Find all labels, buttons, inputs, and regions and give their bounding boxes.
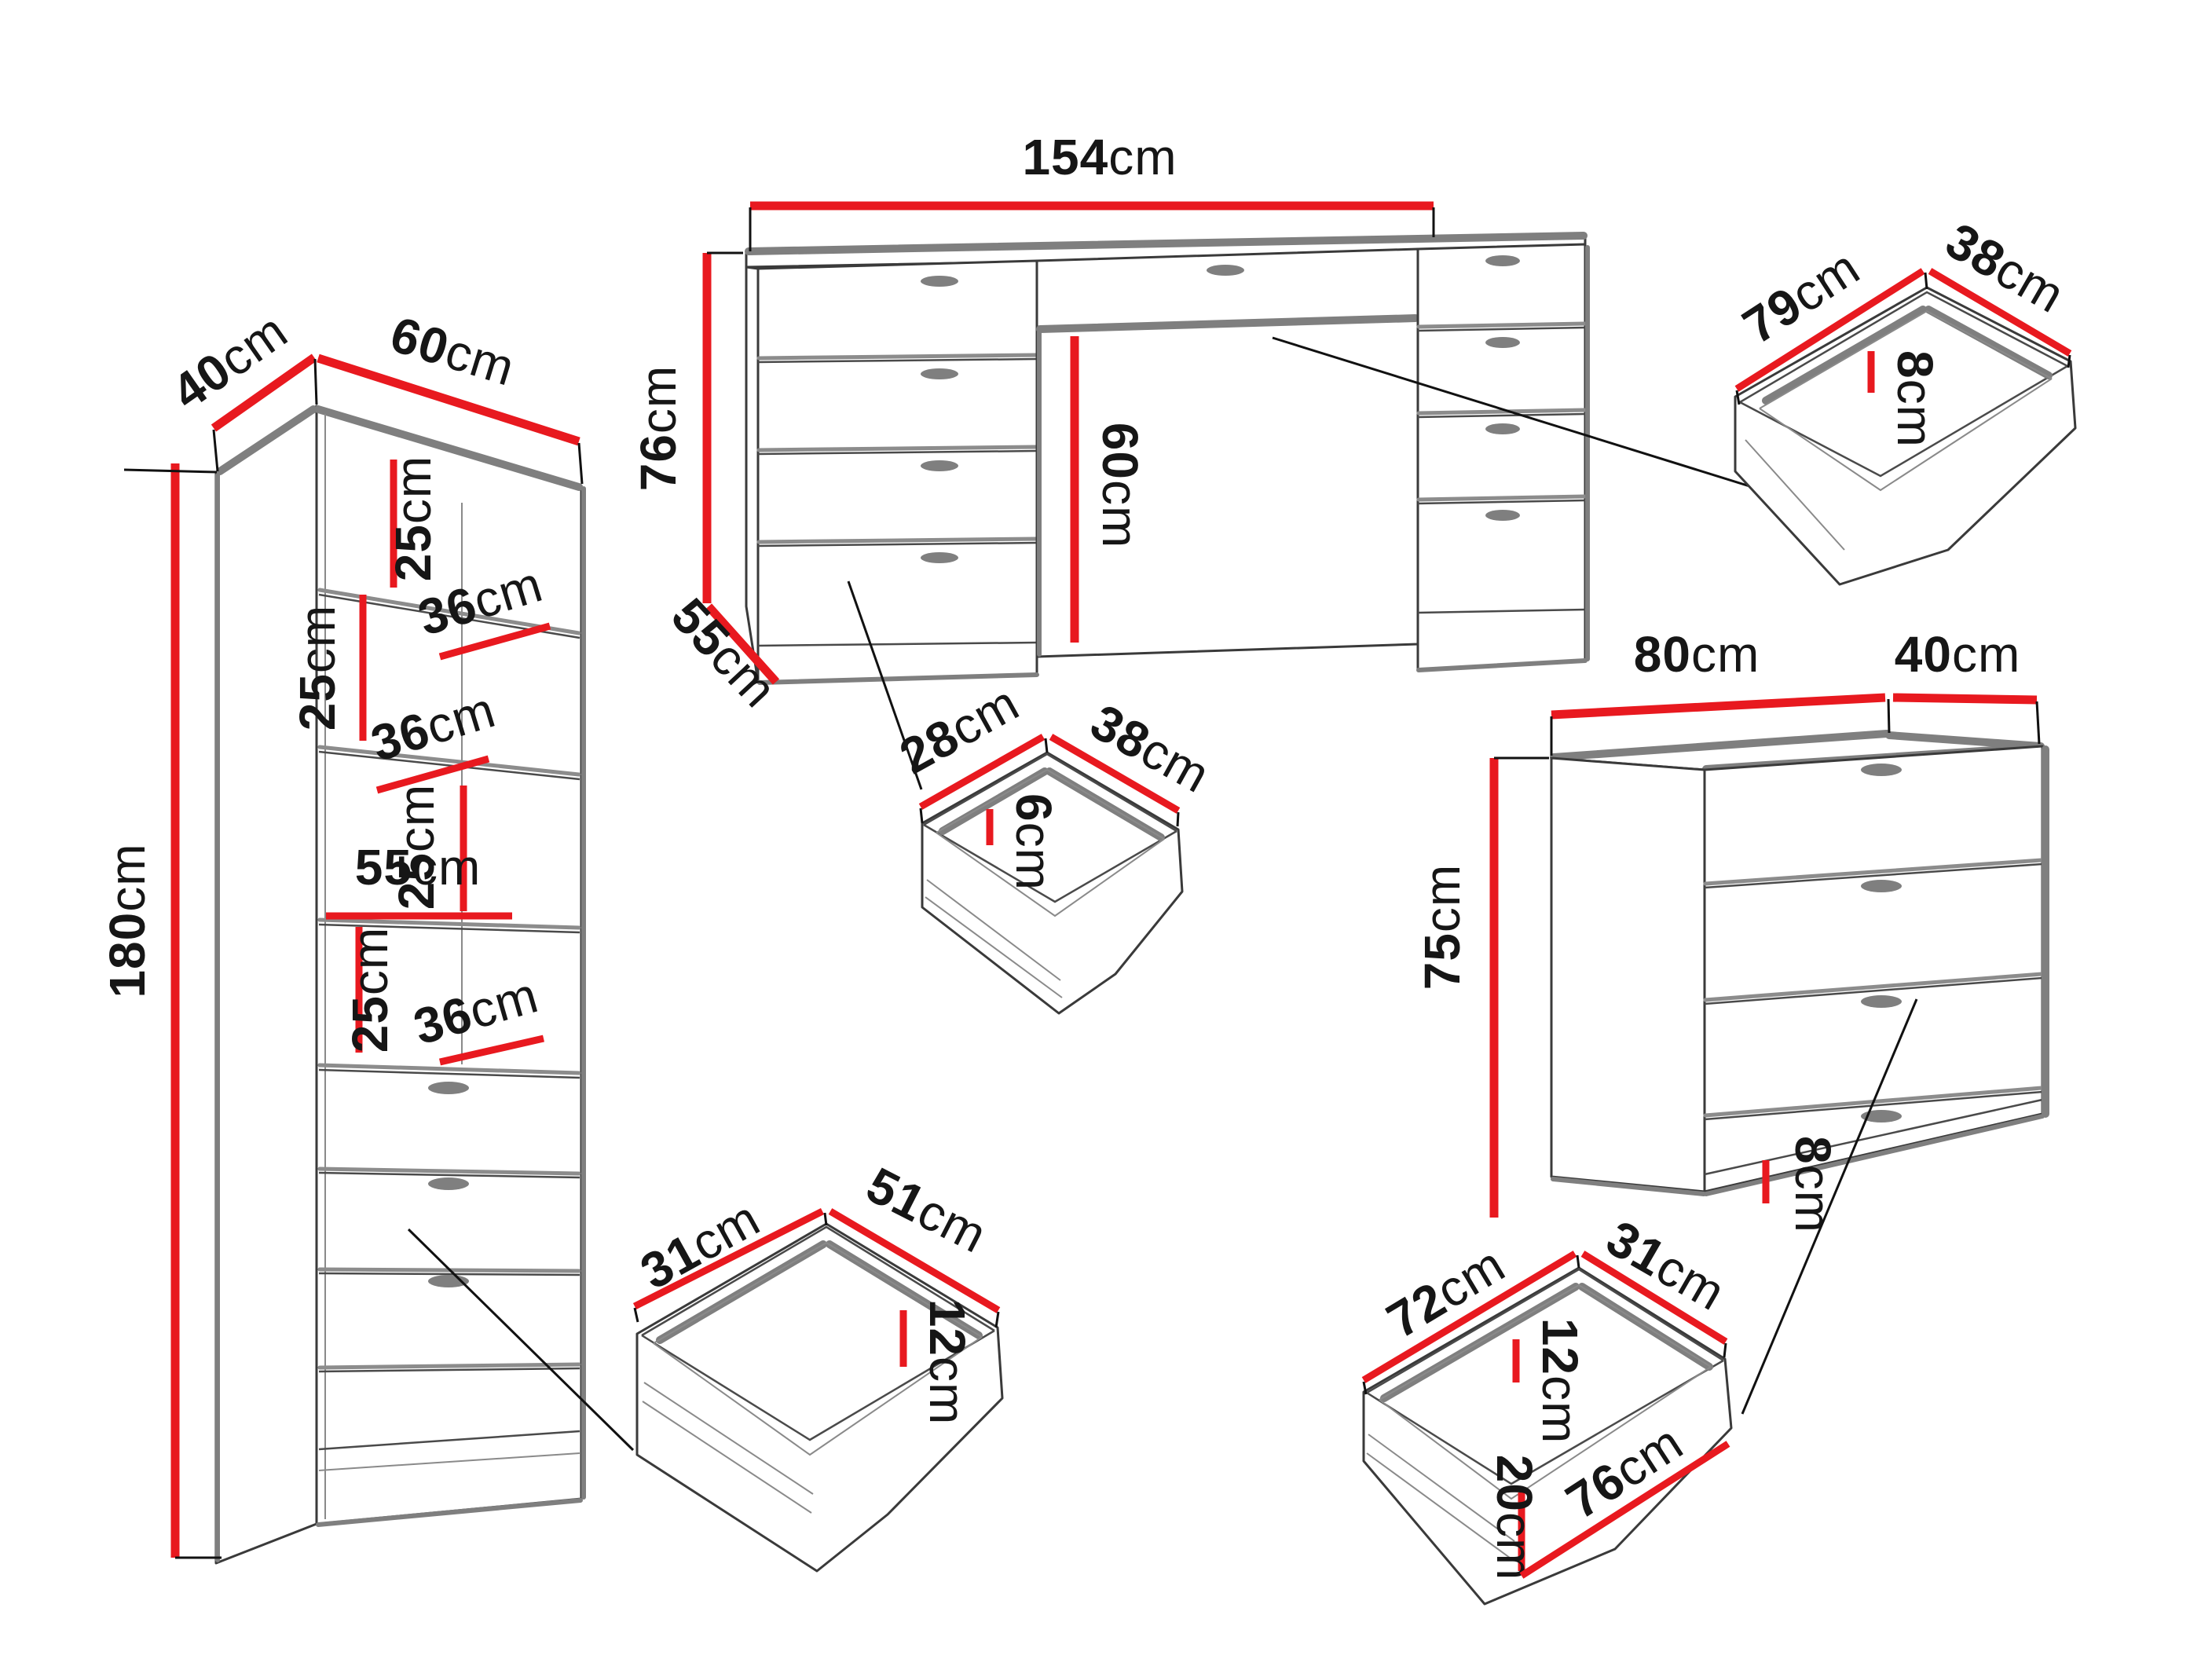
desk-height-label: 76cm: [630, 365, 687, 492]
cabinet-drawer-height-label: 12cm: [919, 1299, 976, 1426]
drawer-handle: [1207, 265, 1244, 276]
chest-front-face: [1705, 746, 2042, 1192]
drawer-handle: [1861, 764, 1902, 776]
desk-drawer-box: 28cm 38cm 6cm: [891, 674, 1220, 1013]
drawer-handle: [428, 1082, 469, 1094]
drawer-handle: [921, 460, 958, 471]
desk-side-face: [746, 267, 758, 682]
drawer-handle: [1861, 880, 1902, 892]
desk-right-pedestal: [1418, 244, 1585, 669]
side-drawer-box: 79cm 38cm 8cm: [1733, 212, 2075, 584]
bookcase-side-face: [216, 406, 317, 1563]
drawer-handle: [1861, 995, 1902, 1008]
chest-depth-line: [1893, 698, 2037, 700]
drawer-handle: [921, 368, 958, 379]
desk-left-pedestal: [758, 261, 1037, 682]
side-drawer-height-label: 8cm: [1887, 350, 1943, 448]
bookcase-depth-label: 40cm: [162, 302, 298, 420]
bookcase-gap2-label: 25cm: [289, 605, 346, 731]
desk-drawer-depth-label: 28cm: [891, 674, 1028, 785]
chest-side-face: [1551, 758, 1705, 1192]
bookcase-gap4-label: 25cm: [342, 927, 398, 1053]
cabinet-drawer-width-label: 51cm: [858, 1156, 996, 1264]
drawer-handle: [1485, 255, 1520, 266]
drawer-handle: [428, 1177, 469, 1190]
chest-width-label: 80cm: [1634, 626, 1760, 683]
chest-base-label: 8cm: [1785, 1136, 1841, 1233]
chest-width-line: [1551, 698, 1885, 715]
chest-height-label: 75cm: [1414, 864, 1470, 991]
diagram-canvas: 180cm 40cm 60cm 25cm 36cm 25cm 36cm 25cm…: [0, 0, 2212, 1659]
drawer-handle: [921, 552, 958, 563]
desk: 154cm 76cm 55cm 60cm: [630, 129, 1803, 789]
chest-drawer-front-height-label: 20cm: [1486, 1455, 1543, 1581]
bookcase-gap1-label: 25cm: [385, 456, 441, 582]
bookcase-height-label: 180cm: [99, 843, 156, 998]
desk-knee-height-label: 60cm: [1092, 423, 1148, 549]
drawer-handle: [921, 276, 958, 287]
drawer-handle: [1485, 423, 1520, 434]
furniture-dimensions-diagram: 180cm 40cm 60cm 25cm 36cm 25cm 36cm 25cm…: [0, 0, 2212, 1659]
desk-drawer-height-label: 6cm: [1005, 793, 1062, 891]
chest-depth-label: 40cm: [1895, 626, 2021, 683]
drawer-handle: [1485, 337, 1520, 348]
bookcase: 180cm 40cm 60cm 25cm 36cm 25cm 36cm 25cm…: [99, 302, 584, 1563]
bookcase-inner-width-label: 55cm: [355, 839, 482, 895]
chest-drawer-box: 72cm 31cm 12cm 20cm 76cm: [1364, 1210, 1734, 1604]
chest-drawer-inner-height-label: 12cm: [1532, 1318, 1588, 1445]
desk-width-label: 154cm: [1022, 129, 1177, 185]
drawer-handle: [1485, 510, 1520, 521]
